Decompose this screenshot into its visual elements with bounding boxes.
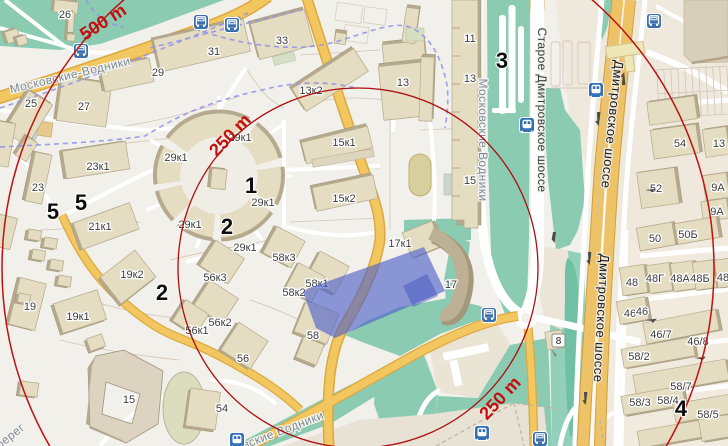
svg-text:5: 5 [47,199,59,224]
svg-text:2: 2 [156,280,168,305]
svg-text:13: 13 [713,138,725,150]
svg-text:48: 48 [717,272,728,284]
svg-text:26: 26 [59,9,71,21]
svg-text:8: 8 [556,336,562,347]
svg-text:58к3: 58к3 [272,252,295,264]
svg-text:19: 19 [24,301,36,313]
svg-text:13к2: 13к2 [299,85,322,97]
svg-text:58/7: 58/7 [670,381,691,393]
svg-text:56к3: 56к3 [203,272,226,284]
svg-text:5: 5 [75,190,87,215]
svg-text:54: 54 [216,403,228,415]
svg-text:48Г: 48Г [646,273,664,285]
svg-text:29: 29 [152,67,164,79]
svg-text:50Б: 50Б [678,229,697,241]
svg-text:58: 58 [307,330,319,342]
svg-text:46/7: 46/7 [650,329,671,341]
svg-text:27: 27 [78,101,90,113]
svg-text:33: 33 [276,35,288,47]
svg-text:58/2: 58/2 [628,351,649,363]
svg-text:58к2: 58к2 [282,287,305,299]
svg-text:31: 31 [208,46,220,58]
svg-text:11: 11 [464,33,475,45]
svg-text:58/3: 58/3 [629,397,650,409]
svg-text:4: 4 [675,396,688,421]
svg-text:48А: 48А [670,273,690,285]
svg-text:19к1: 19к1 [66,311,89,323]
svg-text:15к1: 15к1 [332,137,355,149]
svg-text:17: 17 [445,279,457,291]
svg-text:46: 46 [636,306,648,318]
svg-text:13: 13 [464,73,476,85]
svg-text:9А: 9А [710,206,724,218]
svg-text:2: 2 [221,214,233,239]
svg-text:56к2: 56к2 [208,317,231,329]
svg-text:21к1: 21к1 [88,221,111,233]
svg-text:29к1: 29к1 [251,197,274,209]
svg-text:48: 48 [626,277,638,289]
svg-text:58/5: 58/5 [697,409,718,421]
svg-text:25: 25 [25,98,37,110]
svg-text:54: 54 [674,138,686,150]
svg-text:52: 52 [650,183,662,195]
svg-text:29к1: 29к1 [164,152,187,164]
svg-text:29к1: 29к1 [233,242,256,254]
svg-text:Московские Водники: Московские Водники [476,79,490,202]
svg-text:23: 23 [32,182,44,194]
svg-text:23к1: 23к1 [86,161,109,173]
svg-text:15: 15 [464,175,476,187]
svg-text:9А: 9А [711,182,725,194]
svg-text:15к2: 15к2 [332,193,355,205]
svg-text:13: 13 [397,77,409,89]
svg-text:15: 15 [123,394,135,406]
svg-text:Старое Дмитровское шоссе: Старое Дмитровское шоссе [535,28,549,193]
svg-text:3: 3 [496,48,508,73]
svg-text:19к2: 19к2 [120,269,143,281]
svg-text:1: 1 [245,173,257,198]
svg-text:50: 50 [649,233,661,245]
svg-text:17к1: 17к1 [388,238,411,250]
svg-text:48Б: 48Б [690,273,709,285]
svg-text:56: 56 [237,353,249,365]
svg-text:46: 46 [624,308,636,320]
